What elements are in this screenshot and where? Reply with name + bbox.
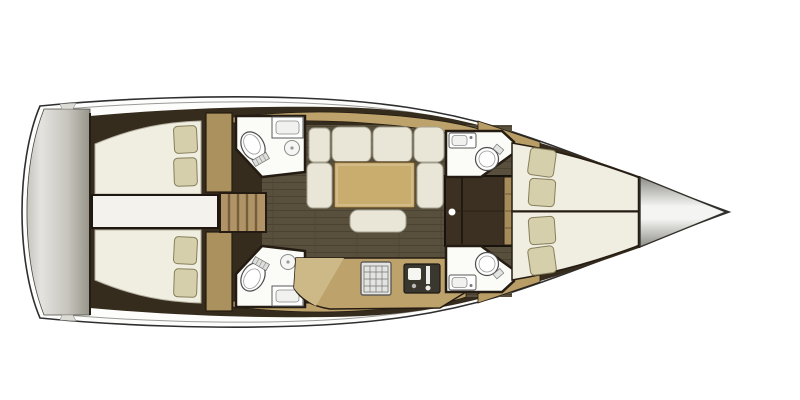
pillow	[173, 125, 197, 153]
sofa-back-cushion	[373, 127, 412, 162]
salon-table	[334, 162, 415, 208]
sofa-seat-cushion-left	[307, 163, 332, 208]
sofa-back-cushion	[309, 128, 330, 162]
pillow	[174, 269, 198, 298]
stern-cleat-notch-starboard	[60, 315, 76, 321]
door-knob	[449, 209, 456, 216]
anchor-locker-cone	[640, 177, 726, 247]
galley	[294, 258, 466, 309]
aft-cabin-port-door	[206, 113, 232, 192]
aft-cabin-starboard-door	[206, 232, 232, 311]
sofa-back-cushion	[414, 127, 444, 162]
pillow	[527, 147, 557, 177]
sofa-back-cushion	[332, 127, 371, 162]
pillow	[174, 158, 198, 187]
forward-cabin-port-berth	[512, 143, 640, 212]
companionway-stairs	[220, 193, 266, 232]
pillow	[528, 178, 556, 207]
bow	[639, 176, 726, 248]
sofa-seat-cushion-right	[417, 163, 443, 208]
transom-swim-platform	[27, 109, 90, 315]
floor-plan	[0, 0, 800, 400]
engine-compartment-hatch	[92, 195, 218, 228]
yacht-floor-plan-canvas	[0, 0, 800, 400]
pillow	[173, 236, 197, 264]
ottoman	[350, 210, 406, 232]
stern-cleat-notch-port	[60, 103, 76, 109]
stove-icon	[361, 262, 391, 295]
pillow	[527, 245, 557, 275]
pillow	[528, 216, 556, 245]
galley-sink-icon	[404, 264, 440, 293]
